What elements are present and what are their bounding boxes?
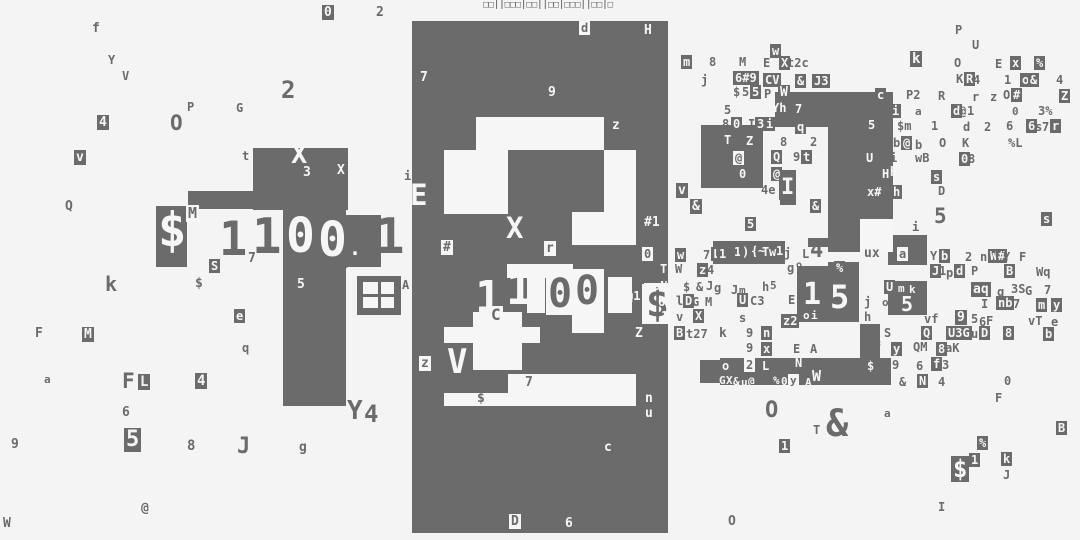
glyph: y xyxy=(788,374,799,387)
glyph: @ xyxy=(959,105,966,117)
glyph: @ xyxy=(901,136,912,150)
block xyxy=(444,150,508,214)
glyph: 9 xyxy=(548,86,556,99)
glyph: o xyxy=(722,360,729,372)
glyph: 0 xyxy=(1012,106,1019,117)
glyph: D xyxy=(979,326,990,340)
glyph: G xyxy=(692,296,699,308)
glyph: f xyxy=(92,22,100,35)
glyph: U xyxy=(866,152,873,164)
glyph: q xyxy=(795,120,806,134)
glyph: y xyxy=(891,342,902,356)
glyph: 1 xyxy=(506,268,533,312)
glyph: v xyxy=(676,183,688,198)
glyph: & xyxy=(795,74,806,88)
glyph: 5 xyxy=(971,313,978,325)
glyph: 4 xyxy=(364,402,378,426)
glyph: $m xyxy=(897,120,911,132)
glyph: T xyxy=(724,134,731,146)
glyph: 0 xyxy=(642,247,653,261)
glyph: s xyxy=(1041,212,1052,226)
glyph: 7 xyxy=(420,71,428,84)
glyph: $ xyxy=(733,86,740,98)
glyph: & xyxy=(696,281,703,293)
glyph: Q xyxy=(65,200,73,213)
glyph: 1 xyxy=(776,245,783,257)
glyph: V xyxy=(882,120,889,132)
glyph: 8 xyxy=(722,118,729,130)
glyph: j xyxy=(701,74,708,86)
glyph: vf xyxy=(924,313,938,325)
glyph: F xyxy=(122,371,135,392)
block xyxy=(700,360,720,383)
glyph: G xyxy=(236,102,243,114)
glyph: & xyxy=(733,376,740,387)
glyph: 8 xyxy=(1003,326,1014,340)
glyph: X xyxy=(693,309,704,323)
glyph: j xyxy=(864,296,871,308)
glyph: Q xyxy=(771,150,782,164)
glyph: H xyxy=(882,168,889,180)
glyph: Z xyxy=(1059,89,1070,103)
glyph: $ xyxy=(195,277,203,290)
glyph: Y xyxy=(108,54,115,66)
glyph: 0 xyxy=(318,216,347,264)
glyph: c xyxy=(604,441,612,454)
glyph: 7 xyxy=(1042,121,1049,133)
glyph: X xyxy=(291,141,307,168)
glyph: n xyxy=(761,326,772,340)
glyph: @1 xyxy=(626,290,640,302)
glyph: 1 xyxy=(967,105,974,117)
glyph: f xyxy=(874,341,881,353)
glyph: 8 xyxy=(187,439,195,453)
glyph: 6#9 xyxy=(733,71,759,85)
glyph: k xyxy=(910,51,922,67)
glyph: P xyxy=(971,265,978,277)
glyph: t2c xyxy=(787,57,809,69)
glyph: a xyxy=(897,247,908,261)
glyph: 6 xyxy=(565,517,573,530)
glyph: 2 xyxy=(281,78,295,102)
glyph: 5 xyxy=(124,428,141,452)
glyph: 7 xyxy=(248,252,256,265)
glyph: X xyxy=(337,164,345,177)
glyph: y xyxy=(1051,298,1062,312)
glyph: j xyxy=(784,247,791,259)
glyph: 9 xyxy=(746,342,753,354)
glyph: o xyxy=(796,261,802,271)
glyph: u xyxy=(645,407,653,420)
glyph: 7 xyxy=(1013,298,1020,310)
glyph: 5 xyxy=(750,85,761,99)
glyph: F xyxy=(1019,251,1026,263)
glyph: g xyxy=(787,262,794,274)
glyph: W xyxy=(812,369,821,384)
glyph: Yh xyxy=(772,102,786,114)
glyph: U xyxy=(737,293,748,307)
glyph: 0 xyxy=(286,212,315,260)
glyph: 9 xyxy=(892,359,899,371)
glyph: 7 xyxy=(795,103,802,115)
glyph: L xyxy=(762,360,769,372)
block xyxy=(444,393,636,406)
glyph: 4 xyxy=(810,240,823,262)
glyph: B xyxy=(674,326,685,340)
glyph: 2 xyxy=(984,121,991,133)
glyph: 6 xyxy=(916,360,923,372)
glyph: @ xyxy=(748,376,755,387)
glyph: 0 xyxy=(322,5,334,20)
glyph: 4 xyxy=(97,115,109,130)
glyph: C xyxy=(489,306,503,324)
glyph: k xyxy=(1001,452,1012,466)
glyph: M xyxy=(186,205,199,222)
glyph: z xyxy=(612,119,620,132)
glyph: $ xyxy=(951,456,969,482)
glyph: ux xyxy=(864,247,880,260)
glyph: O xyxy=(1003,89,1010,101)
glyph: a xyxy=(915,106,922,117)
glyph: X xyxy=(726,375,733,386)
glyph: 5 xyxy=(724,104,731,116)
glyph: T xyxy=(813,424,820,436)
glyph: @ xyxy=(139,501,151,516)
glyph: 7 xyxy=(1044,284,1051,296)
block xyxy=(604,150,636,214)
glyph: 6 xyxy=(122,406,130,419)
glyph: 5 xyxy=(770,280,777,291)
glyph: d xyxy=(963,121,970,133)
glyph: I xyxy=(981,298,988,310)
glyph: E xyxy=(763,57,770,69)
glyph: i xyxy=(912,221,919,233)
barcode-text: □□||□□□|□□||□□|□□□||□□|□ xyxy=(483,1,613,10)
glyph: i xyxy=(890,104,901,118)
glyph: X xyxy=(506,214,523,243)
glyph: U xyxy=(884,280,895,294)
glyph: & xyxy=(810,199,821,213)
glyph: P xyxy=(955,24,962,36)
glyph: h xyxy=(864,311,871,323)
glyph: 1 xyxy=(1004,74,1011,86)
glyph: 0 xyxy=(573,270,601,312)
glyph: 6 xyxy=(658,296,665,308)
glyph: 1 xyxy=(661,310,668,322)
glyph: g xyxy=(299,441,307,454)
glyph: 5 xyxy=(745,217,756,231)
glyph: 3 xyxy=(942,359,949,371)
glyph: & xyxy=(690,199,702,214)
glyph: b xyxy=(939,249,950,263)
glyph: 8 xyxy=(709,56,716,68)
glyph: E xyxy=(788,294,795,306)
glyph: o xyxy=(882,297,889,308)
glyph: 1 xyxy=(931,120,938,132)
block xyxy=(363,297,378,308)
glyph: C3 xyxy=(750,295,764,307)
glyph: r xyxy=(972,91,979,103)
glyph: QM xyxy=(913,341,927,353)
glyph: 0 xyxy=(546,273,574,315)
glyph: d xyxy=(579,21,590,35)
glyph: 1 xyxy=(252,212,282,261)
block xyxy=(476,117,604,150)
glyph: 9 xyxy=(11,438,19,451)
glyph: I xyxy=(779,176,796,200)
glyph: E xyxy=(410,181,427,210)
glyph: O xyxy=(939,137,946,149)
glyph: M xyxy=(739,56,746,68)
glyph: 7 xyxy=(525,376,533,389)
glyph: B xyxy=(1056,421,1067,435)
glyph: z xyxy=(419,356,431,371)
glyph: $ xyxy=(867,360,874,372)
glyph: 1 xyxy=(717,247,728,261)
glyph: A xyxy=(810,343,817,355)
glyph: # xyxy=(441,240,453,255)
glyph: R xyxy=(938,90,945,102)
glyph: m xyxy=(681,55,692,69)
glyph: d xyxy=(954,264,965,278)
glyph: 9 xyxy=(793,151,800,163)
glyph: 1 xyxy=(779,439,790,453)
glyph: e xyxy=(234,309,245,323)
glyph: L xyxy=(802,248,809,260)
glyph: J3 xyxy=(812,74,830,88)
glyph: J xyxy=(706,280,713,292)
glyph: 5 xyxy=(297,278,305,291)
glyph: r xyxy=(1050,119,1061,133)
glyph: nb xyxy=(996,296,1014,310)
glyph: 3S xyxy=(1011,283,1025,295)
glyph: i xyxy=(890,152,897,164)
glyph: Y xyxy=(930,250,937,262)
glyph: s xyxy=(739,312,746,324)
glyph: b xyxy=(1043,327,1054,341)
glyph: #1 xyxy=(642,215,662,230)
glyph: 3% xyxy=(1038,105,1052,117)
glyph: 4e xyxy=(761,184,775,196)
glyph: n xyxy=(980,251,987,263)
glyph: r xyxy=(544,241,556,256)
glyph: J xyxy=(237,436,250,458)
block xyxy=(363,282,378,294)
block xyxy=(188,191,345,209)
glyph: 0 xyxy=(1004,375,1011,387)
glyph: % xyxy=(773,375,780,386)
glyph: u xyxy=(741,377,748,388)
glyph: v xyxy=(676,311,683,323)
glyph: A xyxy=(805,377,812,388)
glitch-canvas: fYV02PGO24tvX3XQ$M11700.1S$kP5AeqFMaFL46… xyxy=(0,0,1080,540)
glyph: Q xyxy=(921,326,932,340)
glyph: G xyxy=(719,375,726,386)
glyph: i xyxy=(811,310,818,321)
glyph: b xyxy=(915,139,922,151)
glyph: k xyxy=(719,327,727,340)
glyph: F xyxy=(995,392,1002,404)
glyph: m xyxy=(1036,298,1047,312)
glyph: E xyxy=(793,343,800,355)
glyph: P xyxy=(764,88,771,100)
glyph: 4 xyxy=(938,376,945,388)
glyph: 1 xyxy=(375,212,405,261)
glyph: 8 xyxy=(968,153,975,165)
glyph: 1 xyxy=(969,453,980,467)
glyph: 1 xyxy=(219,216,247,263)
block xyxy=(444,327,540,343)
glyph: 0 xyxy=(731,117,742,131)
glyph: 2 xyxy=(376,6,384,19)
glyph: 5 xyxy=(742,86,749,98)
glyph: H xyxy=(644,24,652,37)
glyph: P xyxy=(341,262,348,274)
glyph: p xyxy=(946,267,953,279)
glyph: aK xyxy=(945,342,959,354)
block xyxy=(572,212,636,245)
glyph: O xyxy=(954,57,961,69)
glyph: F xyxy=(35,327,43,340)
glyph: 1 xyxy=(803,280,821,310)
glyph: W xyxy=(675,263,682,275)
glyph: n xyxy=(645,392,653,405)
glyph: $ xyxy=(158,207,186,254)
block xyxy=(381,297,394,308)
glyph: h xyxy=(762,281,769,293)
glyph: 2 xyxy=(744,358,755,372)
glyph: ) xyxy=(796,294,803,306)
glyph: s xyxy=(931,170,942,184)
glyph: J xyxy=(1003,469,1010,481)
glyph: O xyxy=(170,113,183,134)
glyph: & xyxy=(1028,73,1039,87)
glyph: z xyxy=(990,91,997,103)
glyph: @ xyxy=(733,151,744,165)
glyph: O xyxy=(728,515,736,528)
glyph: 4 xyxy=(1056,74,1063,86)
glyph: v xyxy=(74,150,86,165)
glyph: x xyxy=(761,342,772,356)
glyph: Z xyxy=(635,327,643,340)
glyph: $ xyxy=(683,281,690,293)
glyph: f xyxy=(931,357,942,371)
glyph: 0 xyxy=(781,376,788,387)
glyph: o xyxy=(803,310,810,321)
glyph: # xyxy=(1011,88,1022,102)
glyph: Y xyxy=(1003,251,1010,263)
glyph: k xyxy=(105,274,117,294)
block xyxy=(701,125,763,188)
glyph: 5 xyxy=(830,281,849,313)
glyph: H xyxy=(890,166,898,179)
glyph: Wq xyxy=(1036,266,1050,278)
glyph: 5 xyxy=(901,294,913,314)
glyph: 9 xyxy=(955,310,967,325)
glyph: A xyxy=(402,279,409,291)
glyph: P xyxy=(187,101,194,113)
glyph: x xyxy=(1010,56,1021,70)
glyph: % xyxy=(1034,56,1045,70)
glyph: t xyxy=(242,150,249,162)
glyph: q xyxy=(242,342,249,354)
glyph: wB xyxy=(915,152,929,164)
glyph: U3G xyxy=(946,326,972,340)
glyph: 7 xyxy=(703,249,710,261)
glyph: 5 xyxy=(934,206,947,227)
glyph: K xyxy=(962,137,969,149)
glyph: G xyxy=(1025,285,1032,297)
glyph: 6 xyxy=(1006,120,1013,132)
glyph: W xyxy=(778,85,790,100)
glyph: oN xyxy=(653,280,667,292)
glyph: & xyxy=(826,405,848,442)
glyph: 2 xyxy=(965,251,972,263)
glyph: 0 xyxy=(739,168,746,180)
glyph: O xyxy=(765,400,778,422)
glyph: B xyxy=(1004,264,1015,278)
glyph: % xyxy=(977,436,988,450)
glyph: vT xyxy=(1028,315,1042,327)
glyph: & xyxy=(899,376,906,388)
glyph: 4 xyxy=(973,74,980,86)
glyph: % xyxy=(834,261,845,275)
glyph: g xyxy=(714,282,721,294)
glyph: 4 xyxy=(195,373,207,389)
glyph: V xyxy=(447,345,467,379)
glyph: w xyxy=(675,248,686,262)
glyph: x# xyxy=(865,185,883,199)
glyph: P2 xyxy=(906,89,920,101)
glyph: h xyxy=(891,185,902,199)
glyph: D xyxy=(509,514,521,529)
glyph: 5 xyxy=(866,118,877,132)
glyph: N xyxy=(917,374,928,388)
glyph: t27 xyxy=(686,328,708,340)
glyph: 8 xyxy=(780,136,787,148)
glyph: aq xyxy=(971,282,991,297)
glyph: a xyxy=(44,374,51,385)
glyph: 4 xyxy=(707,264,714,276)
glyph: 3 xyxy=(303,166,311,179)
glyph: t xyxy=(801,150,812,164)
glyph: D xyxy=(938,185,945,197)
glyph: Y xyxy=(347,398,363,424)
block xyxy=(381,282,394,294)
glyph: Z xyxy=(746,135,753,147)
glyph: L xyxy=(138,374,150,390)
glyph: u xyxy=(971,328,978,340)
glyph: E xyxy=(995,58,1002,70)
glyph: N xyxy=(795,357,802,369)
glyph: i xyxy=(764,117,775,131)
glyph: W xyxy=(3,517,11,530)
glyph: S xyxy=(209,259,220,273)
glyph: 2 xyxy=(810,136,817,148)
glyph: T xyxy=(660,263,667,275)
glyph: c xyxy=(875,88,886,102)
glyph: u xyxy=(795,327,802,339)
glyph: 9 xyxy=(746,327,753,339)
glyph: a xyxy=(884,408,891,419)
glyph: U xyxy=(972,39,979,51)
glyph: b xyxy=(893,137,900,149)
glyph: %L xyxy=(1008,137,1022,149)
glyph: S xyxy=(884,327,891,339)
glyph: M xyxy=(705,296,712,308)
glyph: $ xyxy=(477,392,485,405)
glyph: K xyxy=(956,73,963,85)
